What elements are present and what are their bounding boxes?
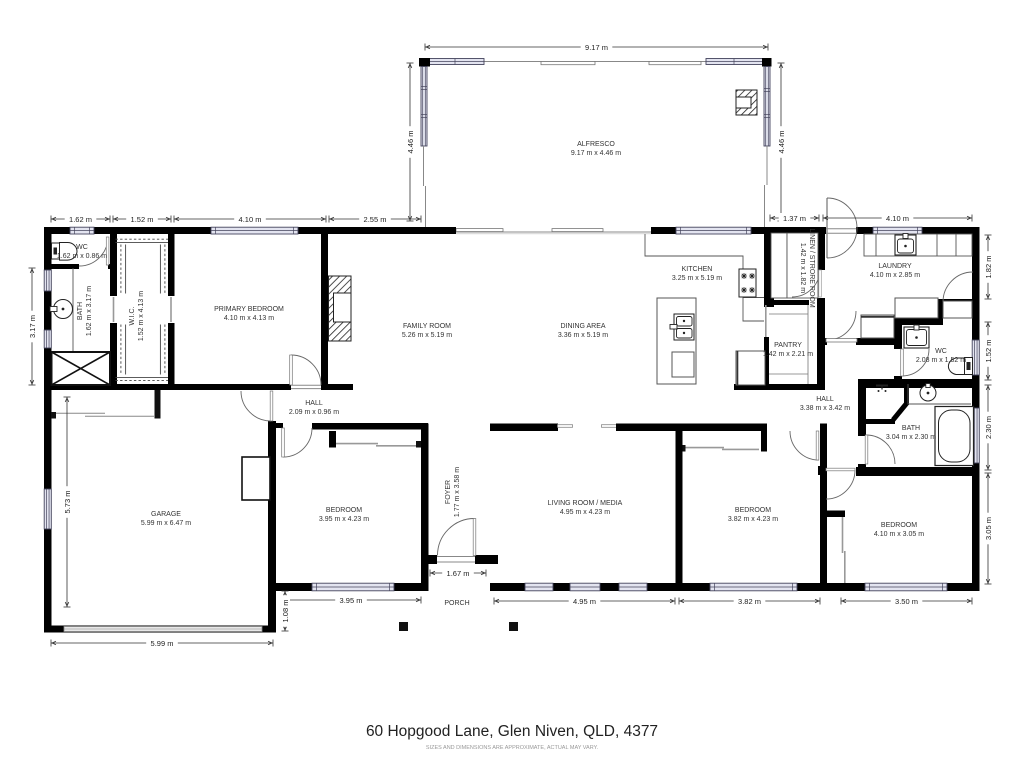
svg-text:5.26 m x 5.19 m: 5.26 m x 5.19 m [402,332,452,339]
svg-text:WC: WC [935,348,947,355]
svg-text:4.46 m: 4.46 m [777,131,786,154]
svg-text:1.62 m: 1.62 m [69,215,92,224]
svg-text:1.67 m: 1.67 m [447,569,470,578]
svg-text:4.95 m x 4.23 m: 4.95 m x 4.23 m [560,509,610,516]
svg-text:BEDROOM: BEDROOM [881,522,917,529]
svg-text:2.30 m: 2.30 m [984,416,993,439]
svg-text:1.08 m: 1.08 m [281,600,290,623]
svg-text:2.09 m x 0.96 m: 2.09 m x 0.96 m [289,409,339,416]
svg-text:9.17 m x 4.46 m: 9.17 m x 4.46 m [571,150,621,157]
svg-text:3.95 m: 3.95 m [340,596,363,605]
svg-text:PORCH: PORCH [444,600,469,607]
svg-text:FOYER: FOYER [445,480,452,504]
svg-text:WC: WC [76,244,88,251]
svg-text:ALFRESCO: ALFRESCO [577,141,615,148]
svg-text:9.17 m: 9.17 m [585,43,608,52]
svg-text:3.25 m x 5.19 m: 3.25 m x 5.19 m [672,275,722,282]
svg-text:1.52 m: 1.52 m [131,215,154,224]
svg-text:1.52 m x 4.13 m: 1.52 m x 4.13 m [138,291,145,341]
svg-text:3.82 m x 4.23 m: 3.82 m x 4.23 m [728,516,778,523]
svg-text:4.10 m: 4.10 m [239,215,262,224]
svg-text:1.82 m: 1.82 m [984,256,993,279]
svg-text:3.05 m: 3.05 m [984,517,993,540]
svg-text:LINEN / STRORE ROOM: LINEN / STRORE ROOM [808,228,815,308]
svg-text:1.42 m x 1.82 m: 1.42 m x 1.82 m [799,243,806,293]
svg-text:KITCHEN: KITCHEN [682,266,713,273]
svg-text:W.I.C.: W.I.C. [129,306,136,325]
svg-text:1.77 m x 3.58 m: 1.77 m x 3.58 m [454,467,461,517]
svg-text:2.08 m x 1.52 m: 2.08 m x 1.52 m [916,357,966,364]
svg-text:1.37 m: 1.37 m [783,214,806,223]
svg-text:1.62 m x 0.86 m: 1.62 m x 0.86 m [57,253,107,260]
svg-text:4.46 m: 4.46 m [406,131,415,154]
svg-text:4.95 m: 4.95 m [573,597,596,606]
svg-text:1.62 m x 3.17 m: 1.62 m x 3.17 m [86,286,93,336]
svg-text:HALL: HALL [305,400,323,407]
svg-text:SIZES AND DIMENSIONS ARE APPRO: SIZES AND DIMENSIONS ARE APPROXIMATE, AC… [426,745,599,751]
svg-text:4.10 m x 2.85 m: 4.10 m x 2.85 m [870,272,920,279]
svg-text:PRIMARY BEDROOM: PRIMARY BEDROOM [214,306,284,313]
svg-text:DINING AREA: DINING AREA [560,323,605,330]
svg-text:FAMILY ROOM: FAMILY ROOM [403,323,451,330]
svg-text:1.42 m x 2.21 m: 1.42 m x 2.21 m [763,351,813,358]
svg-text:4.10 m: 4.10 m [886,214,909,223]
svg-text:3.50 m: 3.50 m [895,597,918,606]
svg-text:LIVING ROOM / MEDIA: LIVING ROOM / MEDIA [548,500,623,507]
svg-text:BEDROOM: BEDROOM [735,507,771,514]
svg-text:3.82 m: 3.82 m [738,597,761,606]
svg-text:3.38 m x 3.42 m: 3.38 m x 3.42 m [800,405,850,412]
svg-text:BEDROOM: BEDROOM [326,507,362,514]
svg-text:1.52 m: 1.52 m [984,340,993,363]
svg-text:BATH: BATH [902,425,920,432]
svg-text:GARAGE: GARAGE [151,511,181,518]
svg-text:5.99 m: 5.99 m [151,639,174,648]
svg-text:5.99 m x 6.47 m: 5.99 m x 6.47 m [141,520,191,527]
svg-text:4.10 m x 3.05 m: 4.10 m x 3.05 m [874,531,924,538]
svg-text:3.17 m: 3.17 m [28,315,37,338]
svg-text:PANTRY: PANTRY [774,342,802,349]
svg-text:60 Hopgood Lane, Glen Niven, Q: 60 Hopgood Lane, Glen Niven, QLD, 4377 [366,723,658,740]
svg-text:LAUNDRY: LAUNDRY [878,263,912,270]
svg-text:3.95 m x 4.23 m: 3.95 m x 4.23 m [319,516,369,523]
svg-text:5.73 m: 5.73 m [63,491,72,514]
svg-text:4.10 m x 4.13 m: 4.10 m x 4.13 m [224,315,274,322]
svg-text:3.04 m x 2.30 m: 3.04 m x 2.30 m [886,434,936,441]
svg-text:BATH: BATH [77,302,84,320]
svg-text:3.36 m x 5.19 m: 3.36 m x 5.19 m [558,332,608,339]
svg-text:2.55 m: 2.55 m [364,215,387,224]
svg-text:HALL: HALL [816,396,834,403]
